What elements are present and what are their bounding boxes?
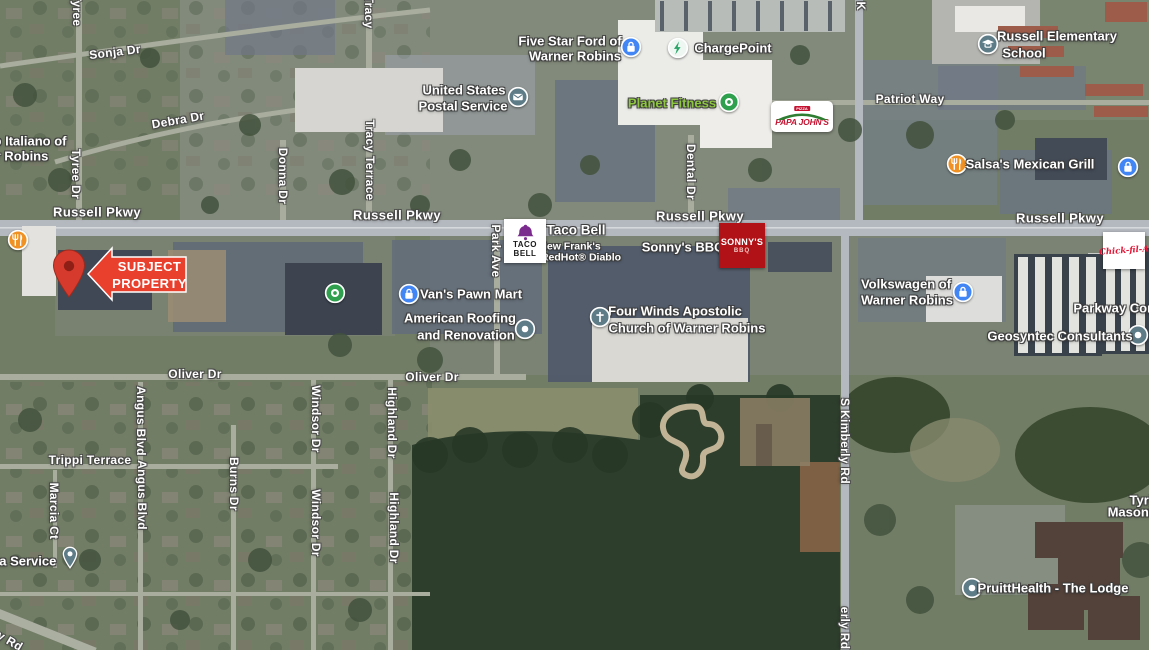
poi-label[interactable]: Geosyntec Consultants — [987, 329, 1132, 344]
dot-icon[interactable] — [514, 318, 536, 340]
chick-fil-a-logo-text: Chick-fil-A — [1099, 244, 1149, 257]
map-labels-layer: TyreeSonja DrTracyDebra DrTyree DrDonna … — [0, 0, 1149, 650]
street-label: Donna Dr — [276, 148, 290, 204]
pawn-icon[interactable] — [398, 283, 420, 305]
street-label: Patriot Way — [876, 92, 945, 106]
restaurant-icon[interactable] — [7, 229, 29, 251]
poi-label[interactable]: Taco Bell — [546, 223, 605, 238]
street-label: Oliver Dr — [405, 370, 458, 384]
poi-label[interactable]: Sonny's BBQ — [642, 240, 725, 255]
street-label: Tyree — [70, 0, 84, 26]
street-label: S Kimberly Rd — [838, 398, 852, 484]
poi-label[interactable]: Russell Elementary — [997, 29, 1117, 44]
poi-label[interactable]: RedHot® Diablo — [541, 251, 621, 266]
street-label: Highland Dr — [387, 492, 401, 563]
street-label: K — [854, 2, 868, 11]
poi-label[interactable]: Warner Robins — [529, 49, 621, 64]
street-label: Russell Pkwy — [1016, 211, 1104, 226]
street-label: Russell Pkwy — [353, 208, 441, 223]
papa-johns-pizza-banner: PIZZA — [794, 106, 810, 111]
poi-label[interactable]: ChargePoint — [694, 41, 771, 56]
sonnys-logo-subtext: BBQ — [734, 248, 750, 254]
shopping-icon[interactable] — [1117, 156, 1139, 178]
street-label: Windsor Dr — [309, 385, 323, 453]
street-label: Tracy — [362, 0, 376, 28]
street-label: Angus Blvd — [135, 460, 149, 530]
street-label: Russell Pkwy — [53, 205, 141, 220]
subject-property-label: SUBJECT PROPERTY — [112, 258, 187, 292]
street-label: Russell Pkwy — [656, 209, 744, 224]
papa-johns-roof-icon: PIZZA — [775, 107, 829, 116]
postal-icon[interactable] — [507, 86, 529, 108]
poi-label[interactable]: Parkway Com — [1073, 301, 1149, 316]
shopping-icon[interactable] — [620, 36, 642, 58]
poi-label[interactable]: PruittHealth - The Lodge — [978, 581, 1129, 596]
poi-label[interactable]: School — [1002, 46, 1045, 61]
poi-label[interactable]: Four Winds Apostolic — [608, 304, 742, 319]
poi-label[interactable]: American Roofing — [404, 311, 516, 326]
poi-label[interactable]: United States — [422, 83, 505, 98]
street-label: Oliver Dr — [168, 367, 221, 381]
sonnys-bbq-logo[interactable]: SONNY'S BBQ — [719, 223, 765, 268]
poi-label[interactable]: Church of Warner Robins — [609, 321, 766, 336]
poi-label[interactable]: and Renovation — [417, 328, 515, 343]
poi-label[interactable]: Van's Pawn Mart — [420, 287, 522, 302]
school-icon[interactable] — [977, 33, 999, 55]
charging-icon[interactable] — [667, 37, 689, 59]
taco-bell-logo-text: TACO BELL — [513, 241, 537, 258]
papa-johns-logo[interactable]: PIZZA PAPA JOHN'S — [771, 101, 833, 132]
store-green-icon[interactable] — [718, 91, 740, 113]
taco-bell-bell-icon — [516, 224, 535, 241]
sonnys-logo-text: SONNY'S — [721, 237, 763, 247]
street-label: erly Rd — [838, 607, 852, 650]
poi-label[interactable]: Planet Fitness — [628, 96, 716, 111]
street-label: Tracy Terrace — [363, 119, 377, 200]
poi-label[interactable]: Salsa's Mexican Grill — [966, 157, 1095, 172]
street-label: Marcia Ct — [47, 483, 61, 540]
street-label: Sonja Dr — [88, 42, 141, 62]
street-label: Dental Dr — [684, 144, 698, 200]
poi-label[interactable]: ia Service — [0, 554, 56, 569]
street-label: Windsor Dr — [309, 489, 323, 557]
street-label: Highland Dr — [385, 387, 399, 458]
taco-bell-logo[interactable]: TACO BELL — [504, 219, 546, 263]
poi-label[interactable]: o Italiano of — [0, 134, 66, 149]
poi-label[interactable]: Volkswagen of — [861, 277, 951, 292]
poi-label[interactable]: Masoni — [1108, 505, 1149, 520]
pawn-icon[interactable] — [952, 281, 974, 303]
store-green-icon[interactable] — [324, 282, 346, 304]
pin-icon[interactable] — [60, 545, 80, 571]
street-label: Angus Blvd — [134, 386, 148, 456]
street-label: Park Ave — [489, 225, 503, 278]
street-label: y Rd — [0, 628, 25, 650]
chick-fil-a-logo[interactable]: Chick-fil-A — [1103, 232, 1145, 269]
street-label: Tyree Dr — [69, 149, 83, 199]
street-label: Burns Dr — [227, 457, 241, 511]
street-label: Debra Dr — [151, 108, 206, 131]
street-label: Trippi Terrace — [49, 453, 132, 467]
poi-label[interactable]: Five Star Ford of — [518, 34, 621, 49]
poi-label[interactable]: r Robins — [0, 149, 48, 164]
poi-label[interactable]: Warner Robins — [861, 293, 953, 308]
poi-label[interactable]: Postal Service — [419, 99, 508, 114]
satellite-map[interactable]: TyreeSonja DrTracyDebra DrTyree DrDonna … — [0, 0, 1149, 650]
